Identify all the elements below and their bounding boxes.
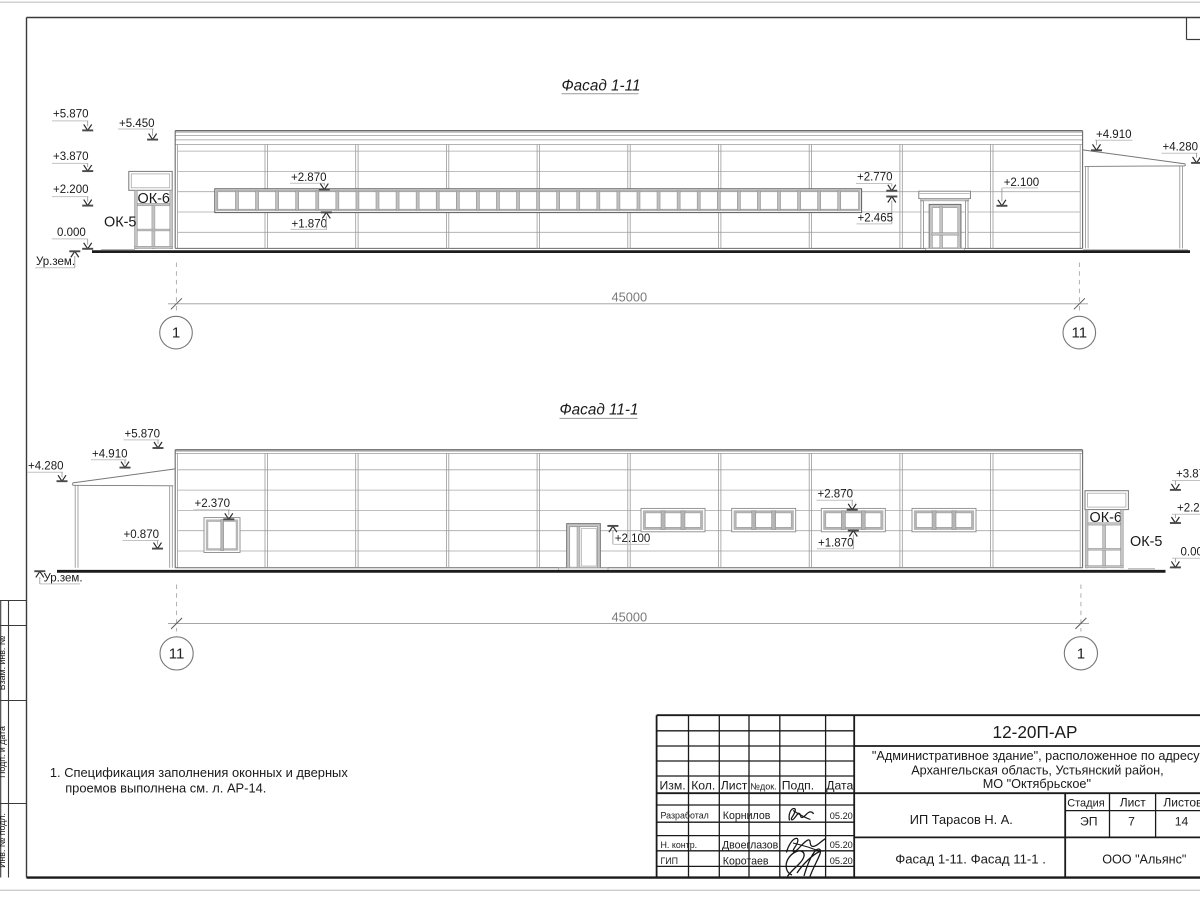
svg-text:Стадия: Стадия	[1067, 798, 1105, 810]
svg-text:+2.200: +2.200	[53, 184, 89, 196]
svg-text:"Административное здание", рас: "Административное здание", расположенное…	[872, 749, 1200, 763]
svg-text:+2.870: +2.870	[291, 172, 327, 184]
svg-text:+2.465: +2.465	[858, 213, 894, 225]
svg-text:05.20: 05.20	[830, 840, 853, 850]
svg-text:Подп. и дата: Подп. и дата	[0, 726, 7, 778]
svg-text:проемов выполнена см. л. АР-14: проемов выполнена см. л. АР-14.	[65, 780, 266, 795]
svg-text:+4.280: +4.280	[1163, 142, 1199, 154]
svg-text:Лист: Лист	[721, 779, 748, 793]
svg-text:+1.870: +1.870	[818, 538, 854, 550]
svg-text:Лист: Лист	[1120, 796, 1147, 810]
svg-text:Архангельская область, Устьянс: Архангельская область, Устьянский район,	[911, 763, 1164, 777]
svg-text:Разработал: Разработал	[661, 811, 709, 821]
svg-text:+2.100: +2.100	[1004, 177, 1039, 189]
svg-text:Корнилов: Корнилов	[723, 810, 771, 822]
svg-text:+3.870: +3.870	[1176, 468, 1200, 480]
svg-text:ЭП: ЭП	[1080, 815, 1098, 829]
svg-text:МО "Октябрьское": МО "Октябрьское"	[983, 777, 1091, 791]
svg-text:1. Спецификация заполнения око: 1. Спецификация заполнения оконных и две…	[50, 765, 348, 780]
svg-text:ИП Тарасов Н. А.: ИП Тарасов Н. А.	[910, 812, 1013, 827]
svg-text:05.20: 05.20	[830, 811, 853, 821]
svg-text:+2.770: +2.770	[857, 171, 893, 183]
svg-text:ГИП: ГИП	[661, 856, 679, 866]
svg-text:№док.: №док.	[750, 781, 776, 791]
svg-text:Фасад 1-11. Фасад 11-1 .: Фасад 1-11. Фасад 11-1 .	[895, 852, 1046, 867]
svg-text:1: 1	[172, 325, 180, 342]
svg-text:Инв. № подл.: Инв. № подл.	[0, 813, 7, 868]
svg-text:45000: 45000	[612, 609, 648, 624]
svg-text:+2.100: +2.100	[615, 533, 651, 545]
svg-text:Ур.зем.: Ур.зем.	[44, 573, 83, 585]
svg-text:+2.370: +2.370	[195, 498, 231, 510]
svg-text:Н. контр.: Н. контр.	[661, 840, 698, 850]
svg-text:11: 11	[1072, 325, 1088, 342]
svg-text:Двоеглазов: Двоеглазов	[722, 840, 779, 852]
svg-text:+2.200: +2.200	[1177, 502, 1200, 514]
svg-text:+5.870: +5.870	[53, 108, 89, 120]
svg-text:14: 14	[1175, 815, 1189, 829]
svg-text:11: 11	[169, 645, 185, 662]
svg-text:Кол.: Кол.	[691, 779, 715, 793]
svg-text:Подп.: Подп.	[782, 779, 814, 793]
svg-text:0.000: 0.000	[1181, 547, 1200, 559]
svg-text:0.000: 0.000	[57, 227, 86, 239]
svg-text:+2.870: +2.870	[818, 489, 854, 501]
svg-text:+4.910: +4.910	[1096, 129, 1132, 141]
svg-text:Фасад 1-11: Фасад 1-11	[562, 78, 641, 95]
svg-text:ОК-5: ОК-5	[1130, 534, 1162, 550]
svg-text:Листов: Листов	[1163, 796, 1200, 810]
svg-text:Взам. инв. №: Взам. инв. №	[0, 636, 7, 691]
svg-text:1: 1	[1077, 645, 1085, 662]
svg-text:+0.870: +0.870	[124, 529, 160, 541]
svg-text:+4.280: +4.280	[28, 460, 64, 472]
svg-text:+3.870: +3.870	[53, 151, 89, 163]
svg-text:Изм.: Изм.	[660, 779, 686, 793]
svg-text:Дата: Дата	[826, 779, 853, 793]
svg-text:+5.870: +5.870	[125, 428, 161, 440]
svg-text:ООО "Альянс": ООО "Альянс"	[1102, 853, 1186, 867]
svg-text:45000: 45000	[612, 290, 648, 305]
svg-text:7: 7	[1128, 815, 1135, 829]
svg-text:05.20: 05.20	[830, 856, 853, 866]
svg-text:+5.450: +5.450	[119, 118, 155, 130]
svg-text:Ур.зем.: Ур.зем.	[36, 256, 75, 268]
svg-text:+4.910: +4.910	[92, 448, 128, 460]
svg-text:Коротаев: Коротаев	[723, 855, 769, 867]
svg-text:ОК-5: ОК-5	[104, 214, 136, 230]
svg-text:Фасад 11-1: Фасад 11-1	[560, 402, 639, 419]
svg-text:12-20П-АР: 12-20П-АР	[993, 722, 1078, 742]
svg-text:+1.870: +1.870	[292, 218, 328, 230]
